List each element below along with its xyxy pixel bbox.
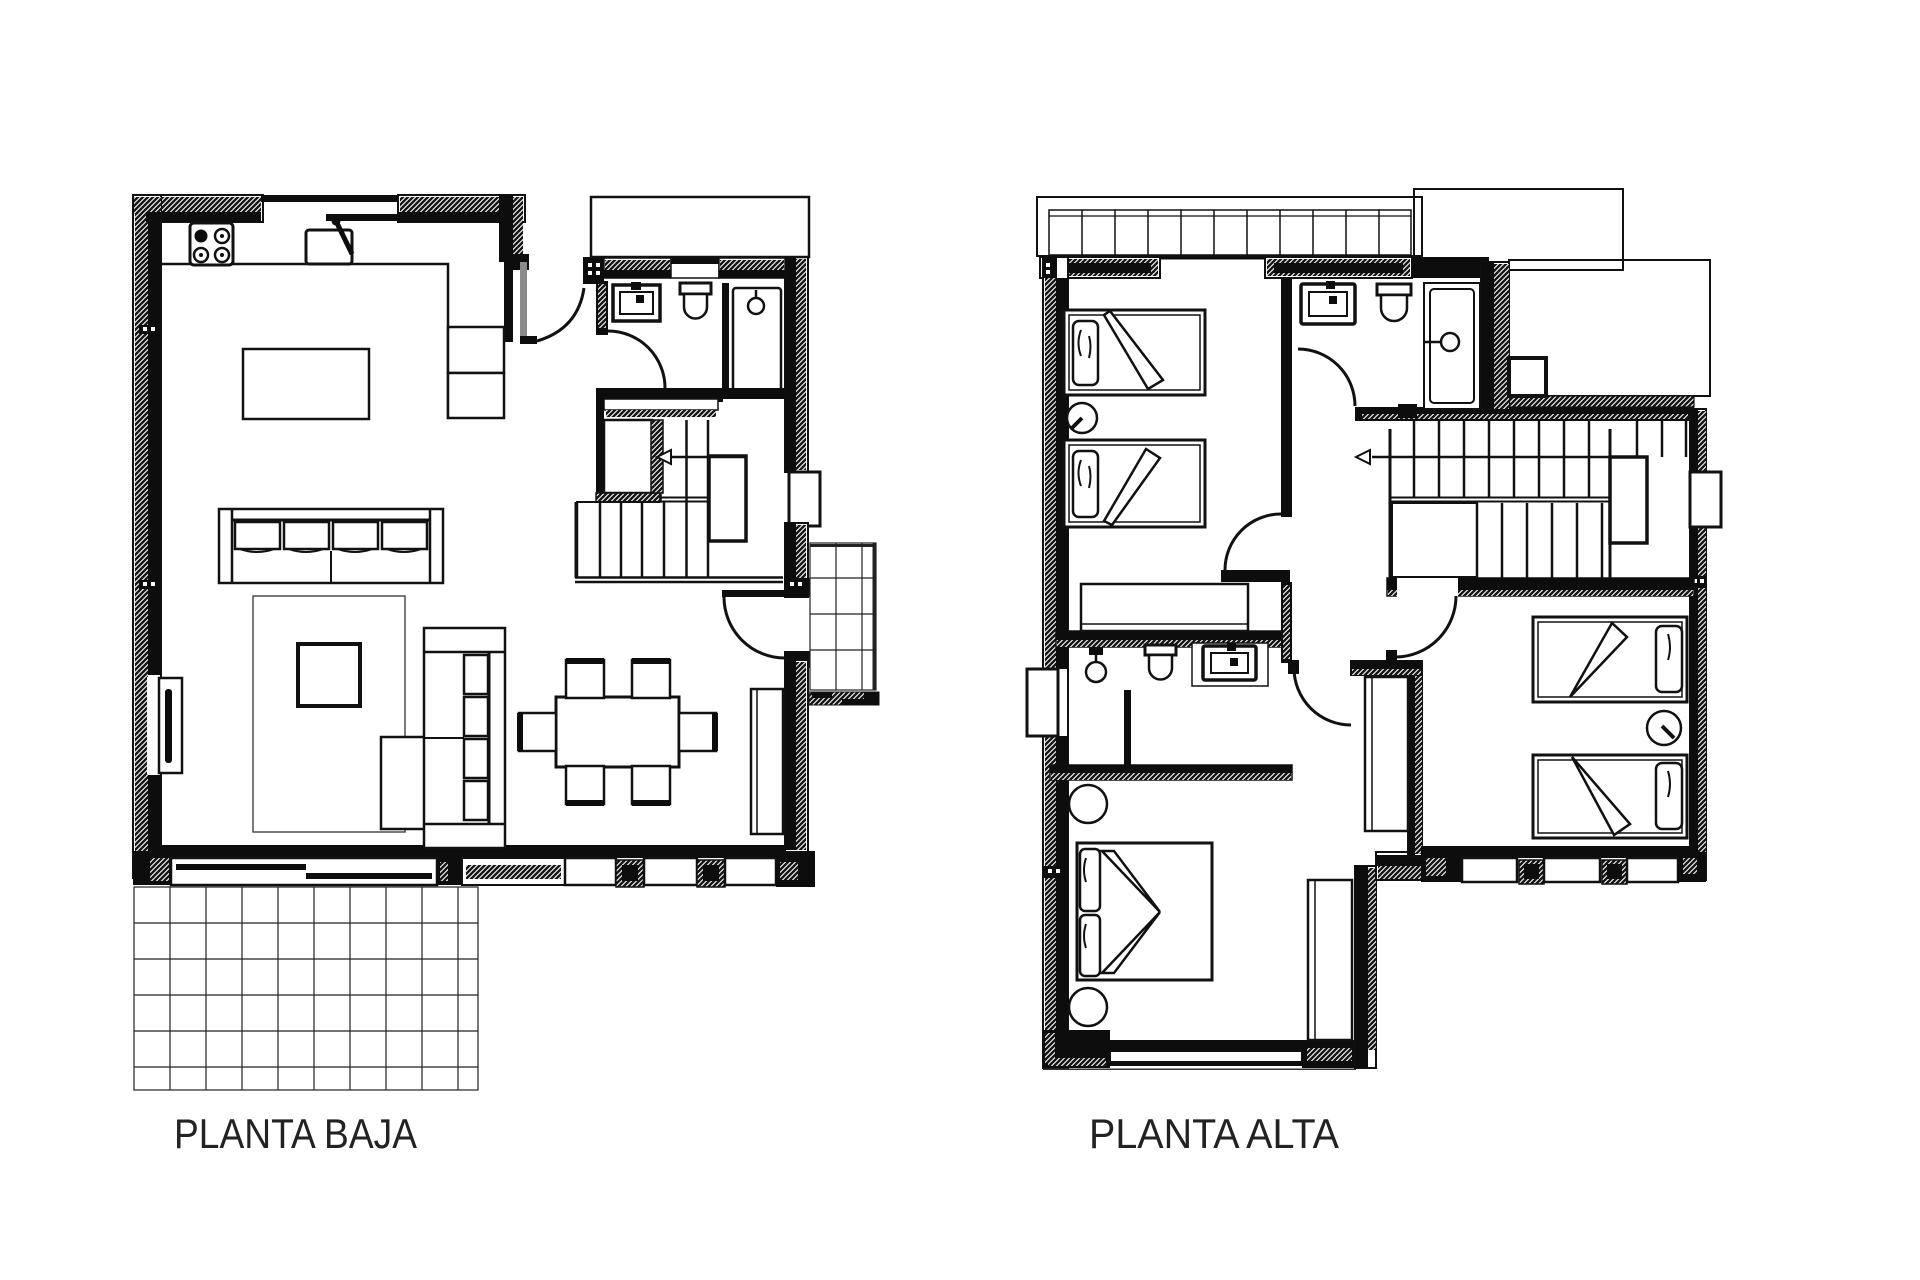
- svg-text:PLANTA ALTA: PLANTA ALTA: [1089, 1110, 1339, 1157]
- svg-text:PLANTA BAJA: PLANTA BAJA: [174, 1110, 417, 1157]
